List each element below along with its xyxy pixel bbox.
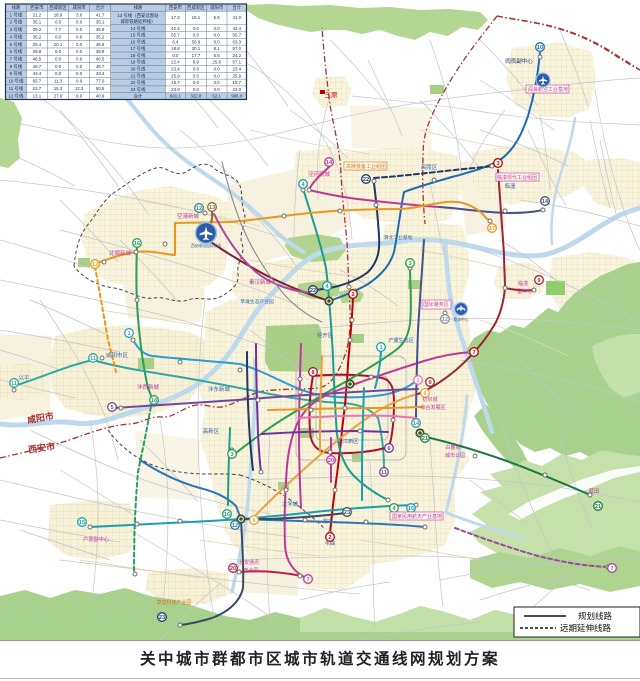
svg-text:0.0: 0.0 (214, 67, 221, 72)
svg-text:咸阳市区: 咸阳市区 (106, 351, 129, 359)
svg-text:0.0: 0.0 (55, 49, 62, 54)
svg-text:49.7: 49.7 (96, 64, 105, 69)
svg-text:5: 5 (110, 405, 113, 411)
svg-text:临潼现代工业组团: 临潼现代工业组团 (497, 174, 537, 181)
svg-text:62.1: 62.1 (212, 94, 221, 99)
svg-text:13: 13 (209, 205, 215, 211)
svg-text:56.9: 56.9 (192, 39, 201, 44)
svg-text:17.7: 17.7 (192, 53, 201, 58)
svg-text:20: 20 (230, 566, 236, 572)
svg-text:65.7: 65.7 (33, 79, 42, 84)
svg-text:北塬新城: 北塬新城 (109, 249, 132, 257)
svg-text:0.0: 0.0 (193, 80, 200, 85)
svg-text:9: 9 (428, 380, 431, 386)
svg-text:临潼: 临潼 (518, 280, 528, 287)
svg-text:兴平: 兴平 (18, 374, 30, 382)
svg-text:23.0: 23.0 (171, 87, 180, 92)
svg-text:0.0: 0.0 (214, 80, 221, 85)
svg-text:7: 7 (306, 577, 309, 583)
svg-text:6: 6 (252, 518, 255, 524)
svg-text:7: 7 (472, 350, 475, 356)
svg-text:3 号线: 3 号线 (10, 26, 23, 33)
svg-text:咸阳市: 咸阳市 (210, 4, 224, 11)
svg-text:曲江新区: 曲江新区 (338, 437, 359, 445)
svg-text:产业园: 产业园 (243, 567, 258, 574)
svg-text:42.4: 42.4 (233, 26, 242, 31)
svg-text:22.7: 22.7 (33, 86, 42, 91)
svg-text:0.0: 0.0 (76, 71, 83, 76)
svg-text:蓝田: 蓝田 (588, 487, 599, 495)
svg-text:11: 11 (90, 356, 96, 362)
svg-text:12 号线: 12 号线 (8, 92, 23, 99)
svg-text:关中城市群都市区城市轨道交通线网规划方案: 关中城市群都市区城市轨道交通线网规划方案 (140, 649, 500, 668)
svg-text:46.9: 46.9 (96, 27, 105, 32)
svg-text:6 号线: 6 号线 (10, 48, 23, 55)
svg-text:规划线路: 规划线路 (578, 611, 613, 621)
svg-text:西安市: 西安市 (169, 4, 183, 11)
svg-text:23.4: 23.4 (233, 67, 242, 72)
svg-text:副中心: 副中心 (517, 288, 532, 295)
svg-text:14: 14 (326, 160, 333, 166)
svg-text:常宁: 常宁 (323, 517, 333, 525)
svg-text:35.2: 35.2 (33, 34, 42, 39)
svg-text:15.3: 15.3 (54, 86, 63, 91)
svg-text:0.0: 0.0 (76, 49, 83, 54)
svg-text:0.0: 0.0 (193, 73, 200, 78)
svg-text:16: 16 (224, 512, 230, 518)
svg-text:18.7: 18.7 (171, 80, 180, 85)
svg-text:合计: 合计 (232, 4, 241, 11)
svg-text:6: 6 (387, 446, 390, 452)
svg-text:大学城: 大学城 (282, 500, 299, 508)
svg-text:3: 3 (408, 261, 411, 267)
svg-text:41.7: 41.7 (96, 12, 105, 17)
svg-text:35.1: 35.1 (96, 20, 105, 25)
svg-text:16: 16 (134, 241, 140, 247)
svg-text:39.9: 39.9 (96, 49, 105, 54)
svg-text:25.8: 25.8 (212, 60, 221, 65)
svg-text:0.0: 0.0 (214, 87, 221, 92)
svg-text:25.9: 25.9 (233, 73, 242, 78)
svg-text:高新区: 高新区 (203, 427, 220, 435)
svg-text:12: 12 (442, 317, 448, 323)
svg-text:11: 11 (381, 470, 387, 476)
svg-text:综合发展区: 综合发展区 (420, 404, 445, 411)
svg-text:渭北工业基地: 渭北工业基地 (384, 234, 413, 241)
svg-text:10 号线: 10 号线 (8, 78, 23, 85)
svg-text:42.4: 42.4 (171, 26, 180, 31)
svg-text:18.1: 18.1 (192, 15, 201, 20)
svg-text:11.3: 11.3 (54, 79, 63, 84)
svg-text:11: 11 (11, 381, 17, 387)
svg-text:0.0: 0.0 (214, 33, 221, 38)
svg-text:5.6: 5.6 (214, 15, 221, 20)
svg-text:城市公园: 城市公园 (445, 452, 465, 459)
svg-text:46.5: 46.5 (33, 57, 42, 62)
svg-text:1 号线: 1 号线 (10, 11, 23, 18)
svg-text:21: 21 (422, 436, 428, 442)
svg-text:14: 14 (413, 421, 420, 427)
svg-text:43.4: 43.4 (96, 71, 105, 76)
svg-text:0.0: 0.0 (76, 42, 83, 47)
svg-text:1: 1 (379, 345, 382, 351)
svg-text:16.9: 16.9 (54, 12, 63, 17)
svg-text:6.4: 6.4 (172, 39, 179, 44)
svg-text:12: 12 (196, 206, 202, 212)
svg-text:13.1: 13.1 (33, 93, 42, 98)
svg-text:国际港务区: 国际港务区 (423, 300, 449, 308)
svg-text:46.5: 46.5 (96, 57, 105, 62)
svg-text:0.0: 0.0 (214, 39, 221, 44)
svg-text:41.0: 41.0 (233, 15, 242, 20)
svg-text:24.2: 24.2 (233, 53, 242, 58)
svg-text:25.4: 25.4 (33, 42, 42, 47)
svg-text:韦曲: 韦曲 (325, 539, 335, 547)
svg-text:远期延伸线路: 远期延伸线路 (560, 623, 612, 633)
svg-text:咸阳市: 咸阳市 (73, 4, 87, 11)
svg-text:西咸新区: 西咸新区 (187, 4, 205, 11)
svg-text:2: 2 (351, 292, 354, 298)
svg-text:0.0: 0.0 (55, 71, 62, 76)
svg-text:6.5: 6.5 (214, 53, 221, 58)
svg-text:25.9: 25.9 (171, 73, 180, 78)
svg-text:43.4: 43.4 (33, 71, 42, 76)
svg-text:10: 10 (537, 45, 543, 51)
svg-text:15: 15 (79, 520, 85, 526)
svg-text:27.6: 27.6 (54, 93, 63, 98)
svg-text:1: 1 (127, 331, 130, 337)
svg-text:0.0: 0.0 (76, 93, 83, 98)
svg-text:2 号线: 2 号线 (10, 19, 23, 26)
svg-text:西安市: 西安市 (30, 4, 44, 11)
svg-text:57.0: 57.0 (233, 46, 242, 51)
svg-text:45.5: 45.5 (96, 42, 105, 47)
svg-text:8 号线: 8 号线 (10, 63, 23, 70)
svg-text:20 号线: 20 号线 (130, 66, 145, 73)
svg-text:0.0: 0.0 (76, 27, 83, 32)
svg-text:8.9: 8.9 (193, 60, 200, 65)
svg-text:0.0: 0.0 (172, 53, 179, 58)
svg-text:30.1: 30.1 (192, 46, 201, 51)
svg-text:0.0: 0.0 (76, 20, 83, 25)
svg-text:0.0: 0.0 (76, 79, 83, 84)
svg-text:沣东新城: 沣东新城 (208, 385, 231, 393)
svg-text:经开区: 经开区 (317, 331, 333, 339)
svg-text:39.2: 39.2 (33, 27, 42, 32)
svg-text:35.1: 35.1 (33, 20, 42, 25)
svg-text:阎良航空工业基地: 阎良航空工业基地 (528, 86, 568, 93)
svg-text:阎良副中心: 阎良副中心 (505, 57, 533, 65)
svg-text:高陵装备工业组团: 高陵装备工业组团 (346, 163, 386, 170)
svg-text:0.0: 0.0 (55, 64, 62, 69)
svg-text:纺织城: 纺织城 (422, 396, 437, 403)
svg-text:322.8: 322.8 (190, 94, 202, 99)
svg-text:0.0: 0.0 (55, 57, 62, 62)
svg-text:14: 14 (542, 199, 549, 205)
svg-text:8: 8 (311, 370, 314, 376)
svg-text:601.1: 601.1 (170, 94, 182, 99)
svg-text:3: 3 (230, 452, 233, 458)
svg-text:7.7: 7.7 (55, 27, 62, 32)
svg-text:长安通讯: 长安通讯 (239, 559, 259, 566)
svg-text:合计: 合计 (134, 93, 143, 100)
svg-text:12.3: 12.3 (75, 86, 84, 91)
svg-text:39.9: 39.9 (33, 49, 42, 54)
svg-text:18.7: 18.7 (233, 80, 242, 85)
svg-text:16 号线: 16 号线 (130, 38, 145, 45)
svg-text:20: 20 (328, 458, 334, 464)
svg-text:15 号线: 15 号线 (130, 32, 145, 39)
svg-text:986.0: 986.0 (231, 94, 243, 99)
svg-text:3.6: 3.6 (76, 12, 83, 17)
svg-text:0.0: 0.0 (76, 34, 83, 39)
svg-text:22: 22 (363, 177, 369, 183)
svg-text:12: 12 (92, 262, 98, 268)
svg-text:8.1: 8.1 (214, 46, 221, 51)
svg-text:55.7: 55.7 (171, 33, 180, 38)
svg-text:40.9: 40.9 (96, 93, 105, 98)
svg-text:7 号线: 7 号线 (10, 56, 23, 63)
svg-text:城际铁路延伸线）: 城际铁路延伸线） (120, 18, 155, 25)
svg-text:0.0: 0.0 (214, 73, 221, 78)
svg-text:奥体中心: 奥体中心 (453, 317, 468, 322)
svg-text:合计: 合计 (96, 4, 105, 11)
svg-text:12: 12 (232, 523, 238, 529)
svg-text:浐灞生态区: 浐灞生态区 (388, 336, 414, 344)
svg-text:23.0: 23.0 (233, 87, 242, 92)
svg-text:7: 7 (610, 566, 613, 572)
svg-text:0.0: 0.0 (55, 34, 62, 39)
svg-text:0.0: 0.0 (193, 33, 200, 38)
svg-text:西咸新区: 西咸新区 (49, 4, 67, 11)
svg-text:9 号线: 9 号线 (10, 70, 23, 77)
svg-text:0.0: 0.0 (193, 67, 200, 72)
svg-text:户县副中心: 户县副中心 (83, 535, 109, 543)
svg-text:草滩生态产业园: 草滩生态产业园 (240, 298, 274, 305)
svg-text:沣西新城: 沣西新城 (137, 383, 160, 391)
svg-text:77.0: 77.0 (96, 79, 105, 84)
svg-text:19 号线: 19 号线 (130, 59, 145, 66)
svg-text:57.1: 57.1 (233, 60, 242, 65)
svg-text:0.0: 0.0 (55, 20, 62, 25)
svg-text:国家民用航天产业基地: 国家民用航天产业基地 (392, 513, 442, 520)
svg-text:23 号线: 23 号线 (130, 86, 145, 93)
svg-text:35.2: 35.2 (96, 34, 105, 39)
svg-text:15: 15 (408, 506, 414, 512)
svg-text:50.5: 50.5 (96, 86, 105, 91)
svg-text:泾河新城: 泾河新城 (308, 170, 331, 178)
svg-text:0.0: 0.0 (193, 87, 200, 92)
svg-text:9: 9 (537, 278, 540, 284)
svg-text:14 号线: 14 号线 (130, 25, 145, 32)
svg-text:21.2: 21.2 (33, 12, 42, 17)
svg-text:临潼: 临潼 (504, 182, 516, 190)
svg-text:0.0: 0.0 (76, 64, 83, 69)
svg-text:高陵区: 高陵区 (421, 163, 438, 171)
svg-text:0.0: 0.0 (214, 26, 221, 31)
svg-text:21: 21 (595, 504, 601, 510)
svg-text:23: 23 (159, 615, 165, 621)
svg-text:白鹿原: 白鹿原 (445, 444, 460, 451)
svg-text:秦汉新城: 秦汉新城 (249, 278, 272, 286)
svg-text:21 号线: 21 号线 (130, 72, 145, 79)
svg-text:18 号线: 18 号线 (130, 52, 145, 59)
svg-text:11 号线: 11 号线 (9, 85, 24, 92)
svg-text:线路: 线路 (12, 4, 21, 11)
svg-text:三原: 三原 (325, 91, 339, 99)
svg-text:20.1: 20.1 (54, 42, 63, 47)
svg-text:5 号线: 5 号线 (10, 41, 23, 48)
svg-text:草堂科技产业园: 草堂科技产业园 (156, 599, 191, 606)
svg-text:0.0: 0.0 (76, 57, 83, 62)
svg-text:17: 17 (489, 226, 495, 232)
svg-text:22 号线: 22 号线 (130, 79, 145, 86)
svg-text:17 号线: 17 号线 (130, 45, 145, 52)
svg-text:18.8: 18.8 (171, 46, 180, 51)
svg-text:17.3: 17.3 (171, 15, 180, 20)
svg-text:1: 1 (416, 378, 419, 384)
svg-text:23: 23 (344, 510, 350, 516)
svg-text:18: 18 (151, 398, 157, 404)
svg-text:63.3: 63.3 (233, 39, 242, 44)
svg-text:55.7: 55.7 (233, 33, 242, 38)
svg-text:22.4: 22.4 (171, 60, 180, 65)
svg-text:线路: 线路 (134, 4, 143, 11)
svg-text:0.0: 0.0 (193, 26, 200, 31)
svg-text:4 号线: 4 号线 (10, 33, 23, 40)
svg-text:3: 3 (496, 161, 499, 167)
svg-text:空港新城: 空港新城 (177, 212, 200, 220)
svg-text:22: 22 (310, 288, 316, 294)
svg-text:49.7: 49.7 (33, 64, 42, 69)
svg-text:23.4: 23.4 (171, 67, 180, 72)
